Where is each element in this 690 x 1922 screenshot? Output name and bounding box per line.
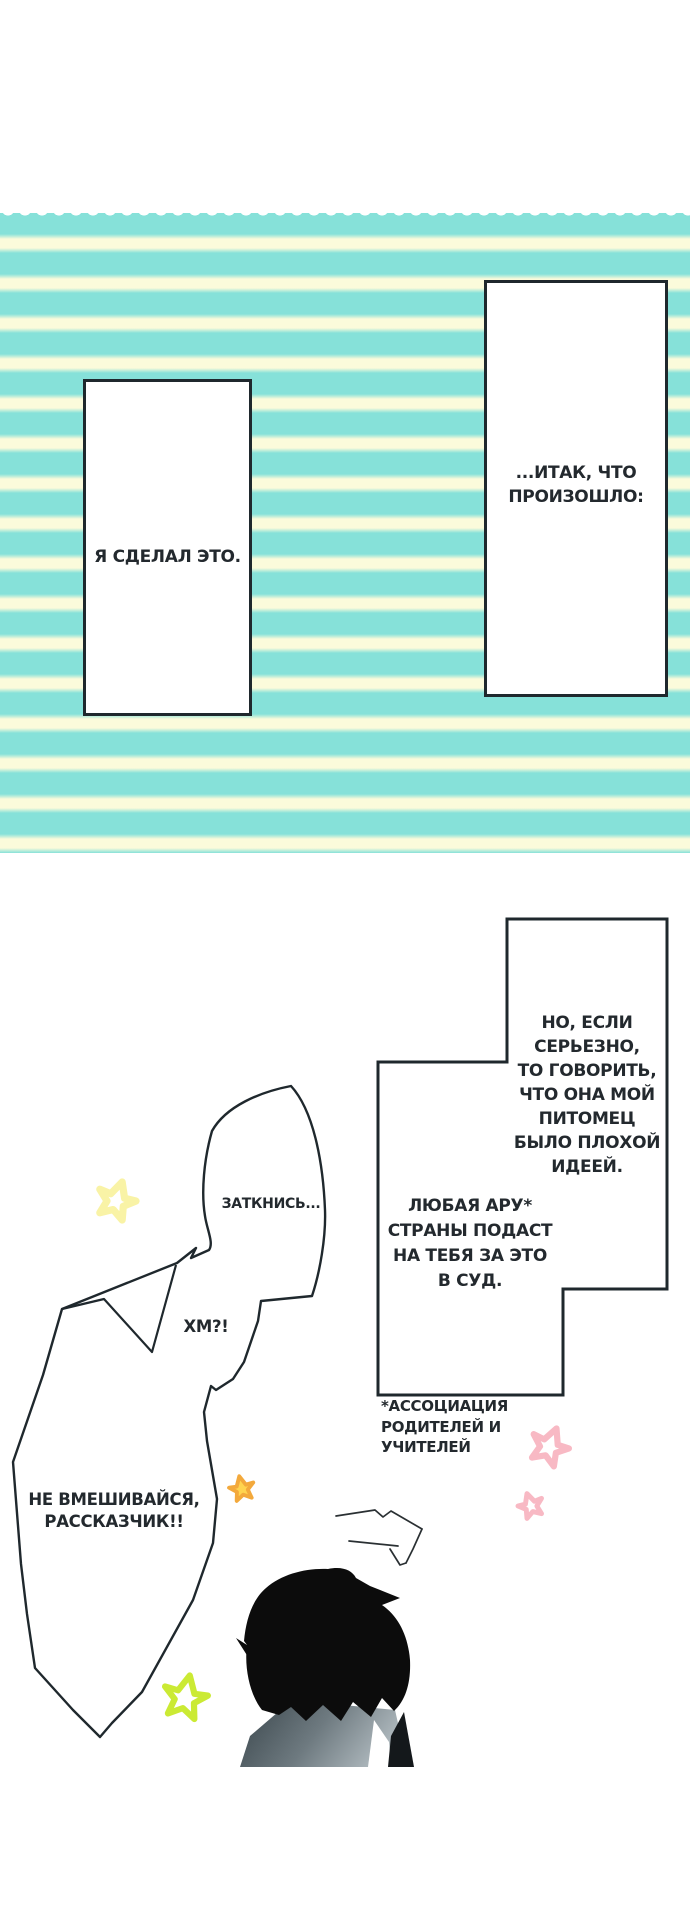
- narration-line: ...ИТАК, ЧТО: [486, 462, 666, 486]
- bubble-line: РАССКАЗЧИК!!: [16, 1511, 212, 1533]
- gold-star-icon: [227, 1474, 256, 1502]
- bubble-line: ТО ГОВОРИТЬ,: [505, 1059, 669, 1083]
- bubble-line: НА ТЕБЯ ЗА ЭТО: [375, 1244, 565, 1269]
- bubble-line: ПИТОМЕЦ: [505, 1107, 669, 1131]
- bubble-line: НЕ ВМЕШИВАЙСЯ,: [16, 1489, 212, 1511]
- bubble-line: В СУД.: [375, 1269, 565, 1294]
- bubble-line: СТРАНЫ ПОДАСТ: [375, 1219, 565, 1244]
- green-star-icon: [160, 1671, 211, 1721]
- serious-bubble-text: НО, ЕСЛИ СЕРЬЕЗНО, ТО ГОВОРИТЬ, ЧТО ОНА …: [505, 1011, 669, 1179]
- bubble-line: ХМ?!: [156, 1317, 256, 1337]
- narration-right-text: ...ИТАК, ЧТО ПРОИЗОШЛО:: [486, 462, 666, 509]
- artwork-layer: [0, 0, 690, 1922]
- pale-yellow-star-icon: [93, 1176, 140, 1222]
- bubble-line: ЛЮБАЯ АРУ*: [375, 1194, 565, 1219]
- bubble-line: ЗАТКНИСЬ...: [205, 1195, 337, 1213]
- protest-bubble-text: НЕ ВМЕШИВАЙСЯ, РАССКАЗЧИК!!: [16, 1489, 212, 1533]
- footnote: *АССОЦИАЦИЯ РОДИТЕЛЕЙ И УЧИТЕЛЕЙ: [381, 1396, 541, 1458]
- pta-bubble-text: ЛЮБАЯ АРУ* СТРАНЫ ПОДАСТ НА ТЕБЯ ЗА ЭТО …: [375, 1194, 565, 1294]
- footnote-line: УЧИТЕЛЕЙ: [381, 1437, 541, 1458]
- character-hair: [244, 1568, 410, 1721]
- shutup-bubble-text: ЗАТКНИСЬ...: [205, 1195, 337, 1213]
- bubble-line: НО, ЕСЛИ: [505, 1011, 669, 1035]
- bubble-line: ЧТО ОНА МОЙ: [505, 1083, 669, 1107]
- bubble-line: БЫЛО ПЛОХОЙ: [505, 1131, 669, 1155]
- footnote-line: РОДИТЕЛЕЙ И: [381, 1417, 541, 1438]
- pink-star-small-icon: [515, 1490, 546, 1520]
- narration-left-text: Я СДЕЛАЛ ЭТО.: [85, 546, 250, 568]
- character: [236, 1568, 414, 1767]
- emphasis-doodle-icon: [336, 1510, 422, 1565]
- narration-line: ПРОИЗОШЛО:: [486, 486, 666, 510]
- bubble-line: СЕРЬЕЗНО,: [505, 1035, 669, 1059]
- bubble-line: ИДЕЕЙ.: [505, 1155, 669, 1179]
- hm-text: ХМ?!: [156, 1317, 256, 1337]
- comic-page: Я СДЕЛАЛ ЭТО. ...ИТАК, ЧТО ПРОИЗОШЛО: НО…: [0, 0, 690, 1922]
- footnote-line: *АССОЦИАЦИЯ: [381, 1396, 541, 1417]
- narration-line: Я СДЕЛАЛ ЭТО.: [85, 546, 250, 568]
